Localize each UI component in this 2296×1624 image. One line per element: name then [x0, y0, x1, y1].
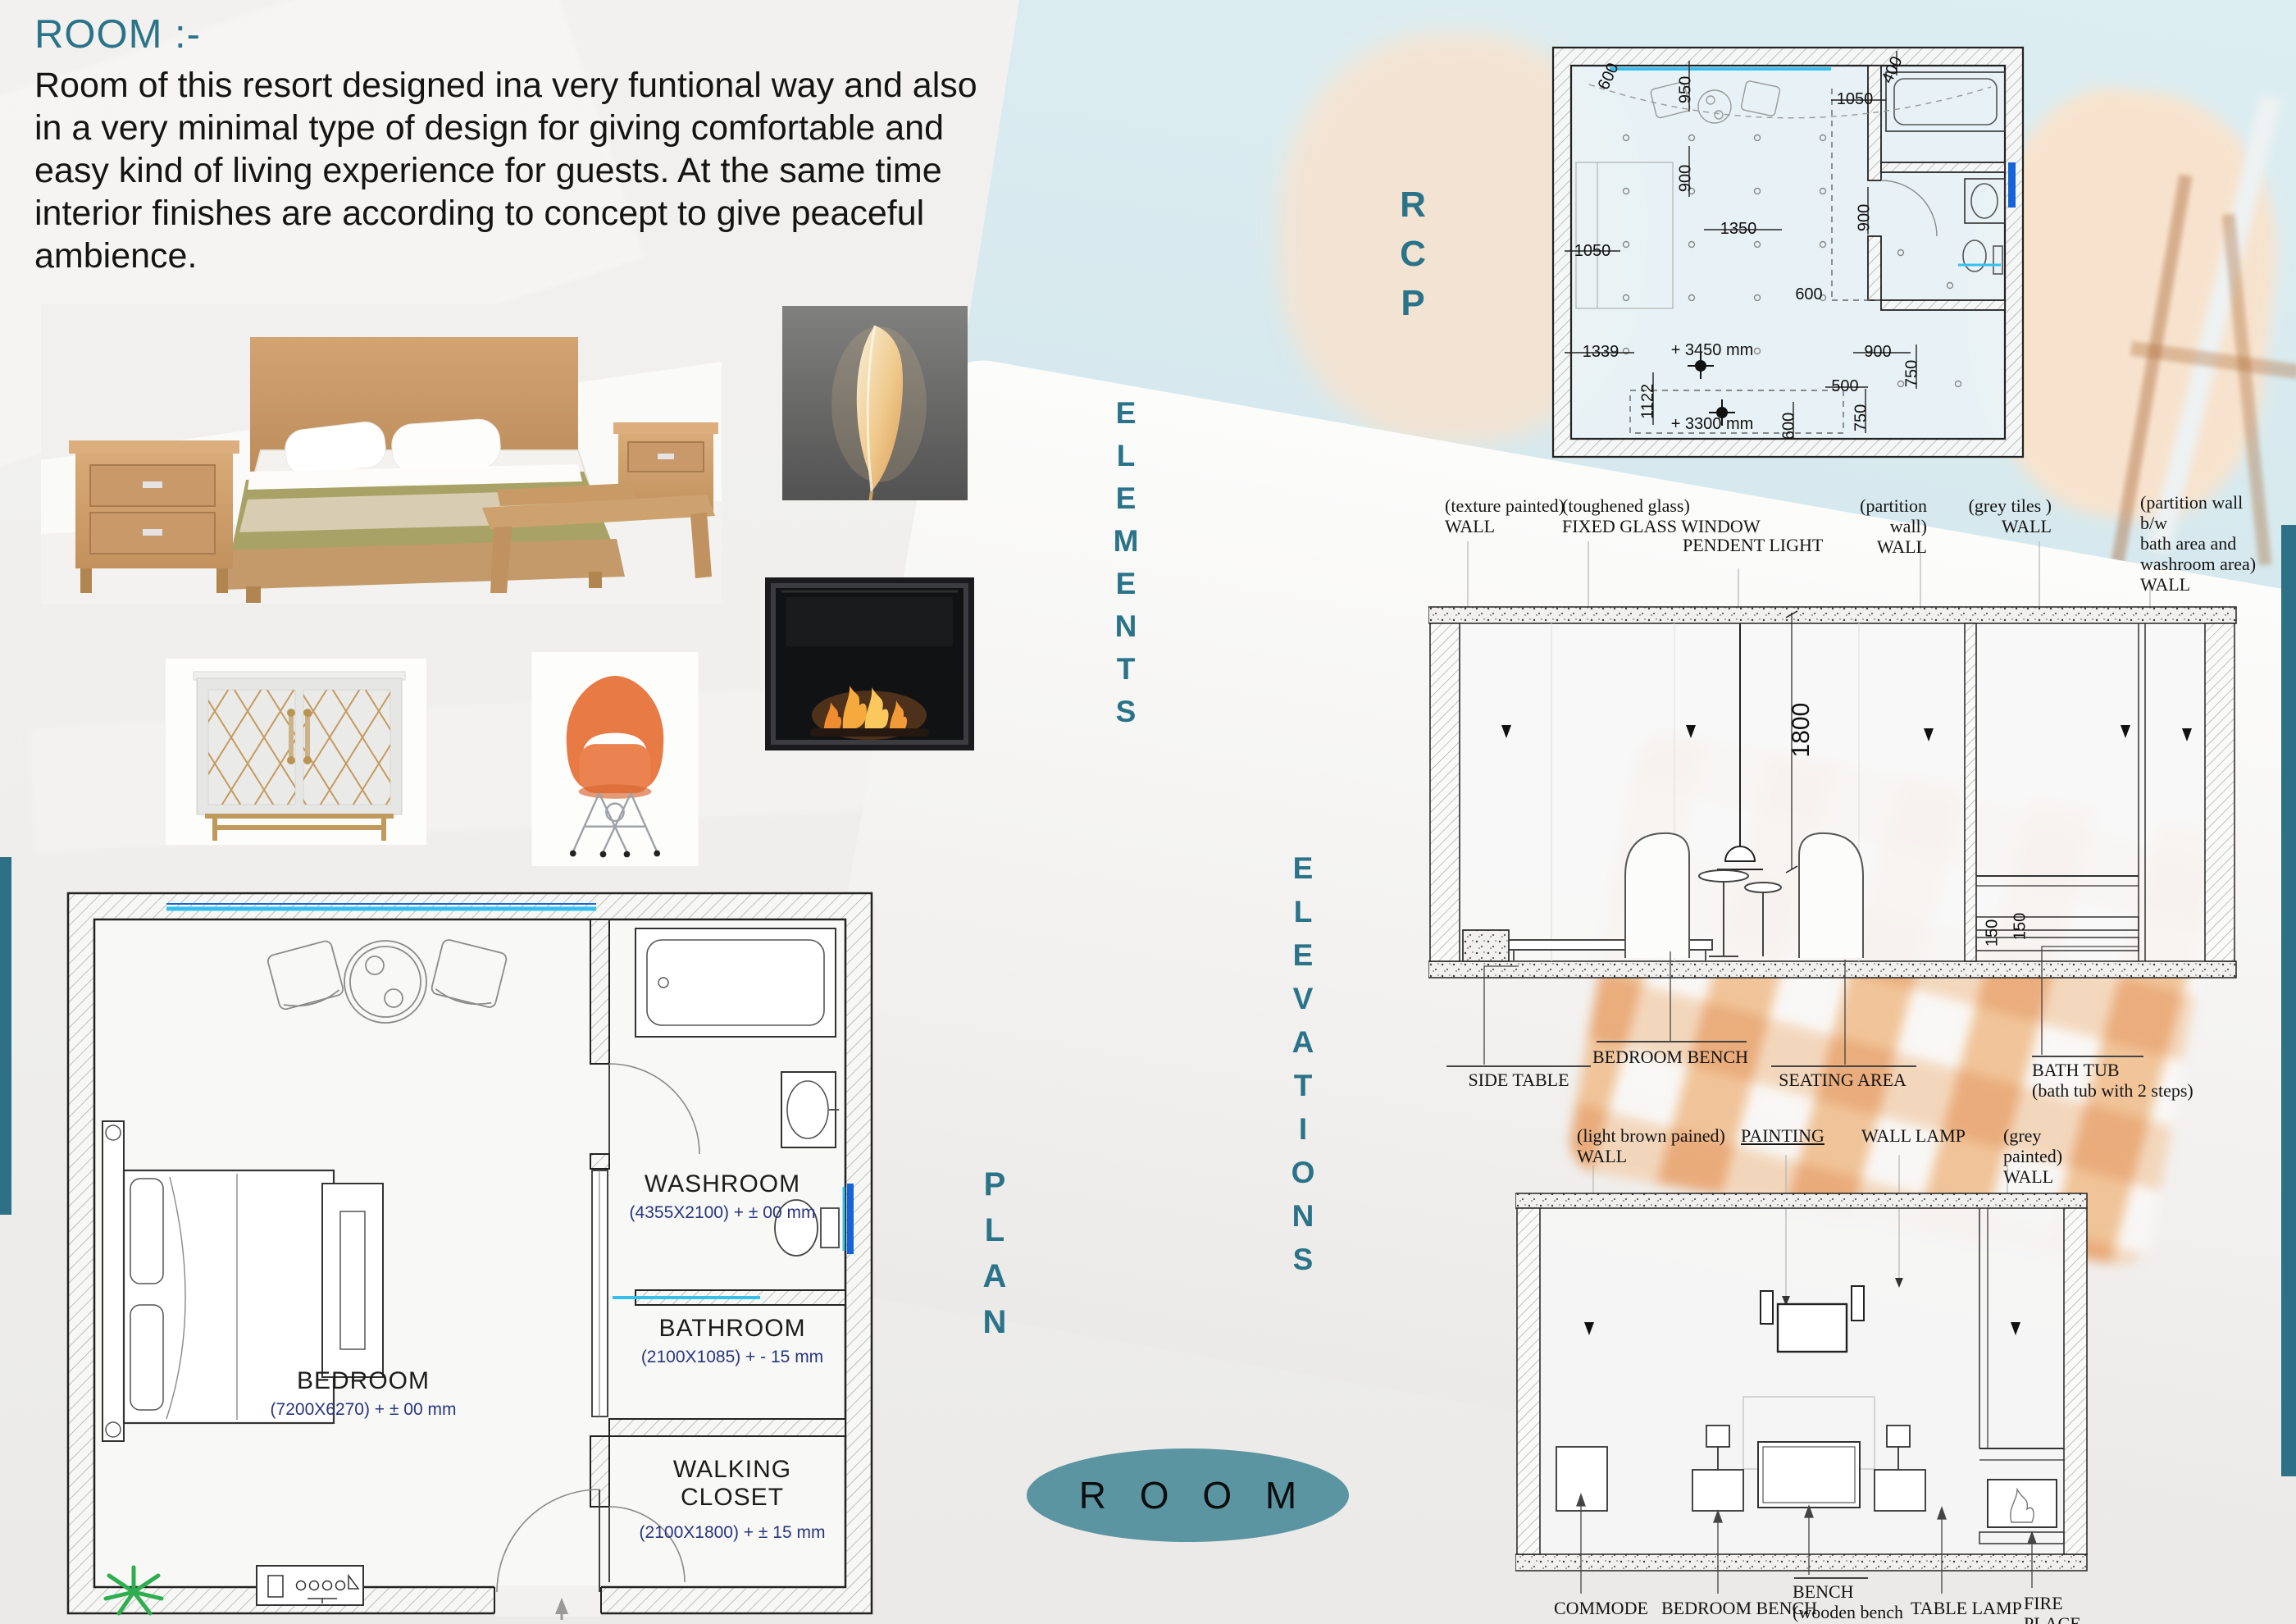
page-title: ROOM :- — [34, 11, 1100, 57]
vertical-letter: S — [1276, 1238, 1330, 1281]
bed-glyph — [223, 337, 625, 603]
vertical-letter: R — [1386, 180, 1440, 230]
room-badge: R O O M — [1027, 1448, 1349, 1542]
rcp-dim: 900 — [1856, 204, 1875, 231]
header-block: ROOM :- Room of this resort designed ina… — [34, 11, 1100, 277]
vertical-letter: E — [1276, 846, 1330, 890]
washroom-label: WASHROOM — [645, 1170, 800, 1198]
rcp-svg — [1548, 39, 2028, 462]
section-label-elements: ELEMENTS — [1099, 392, 1153, 733]
rcp-level: + 3450 mm — [1671, 341, 1754, 360]
teal-strip-left — [0, 857, 11, 1215]
elevation-front-drawing: (texture painted) WALL(toughened glass) … — [1428, 490, 2257, 1115]
elevation2-bottom-labels: COMMODEBEDROOM BENCHBENCH (wooden bench … — [1515, 1122, 2098, 1624]
vertical-letter: T — [1276, 1064, 1330, 1107]
rcp-dim: 750 — [1903, 360, 1922, 387]
vertical-letter: S — [1099, 691, 1153, 733]
bathroom-label: BATHROOM — [658, 1315, 805, 1343]
vertical-letter: L — [1276, 890, 1330, 933]
commode-label: COMMODE — [1554, 1598, 1648, 1618]
wall-lamp-photo — [782, 306, 968, 500]
vertical-letter: P — [1386, 279, 1440, 328]
elevation-bed-wall-drawing: (light brown pained) WALLPAINTINGWALL LA… — [1515, 1122, 2098, 1624]
rcp-dim: 1122 — [1639, 384, 1658, 419]
washroom-dims: (4355X2100) + ± 00 mm — [630, 1203, 816, 1223]
vertical-letter: L — [1099, 435, 1153, 477]
table-lamp-label: TABLE LAMP — [1911, 1598, 2022, 1618]
cabinet-svg — [166, 659, 426, 845]
rcp-dim: 500 — [1831, 377, 1858, 396]
rcp-dim: 900 — [1677, 165, 1696, 192]
floor-plan-drawing: WASHROOM(4355X2100) + ± 00 mmBATHROOM(21… — [61, 882, 877, 1620]
fireplace-svg — [765, 577, 974, 750]
vertical-letter: N — [1099, 605, 1153, 648]
vertical-letter: L — [968, 1207, 1022, 1253]
bath-tub-label: BATH TUB (bath tub with 2 steps) — [2032, 1060, 2193, 1101]
vertical-letter: O — [1276, 1151, 1330, 1194]
vertical-letter: A — [968, 1253, 1022, 1299]
chair-svg — [531, 652, 699, 866]
rcp-dim: 1050 — [1574, 242, 1611, 261]
section-label-plan: PLAN — [968, 1161, 1022, 1345]
presentation-board: ROOM :- Room of this resort designed ina… — [0, 0, 2296, 1624]
bench-label: BENCH (wooden bench in front of bed) — [1793, 1581, 1903, 1624]
vertical-letter: V — [1276, 977, 1330, 1020]
bedroom-label: BEDROOM — [297, 1367, 430, 1395]
intro-paragraph: Room of this resort designed ina very fu… — [34, 64, 1100, 277]
seating-area-label: SEATING AREA — [1779, 1070, 1906, 1090]
sink-glyph — [781, 1072, 839, 1147]
walking-closet-label: WALKING CLOSET — [673, 1456, 791, 1512]
fireplace-photo — [765, 577, 974, 750]
rcp-dim: 950 — [1677, 76, 1696, 103]
cabinet-glyph — [194, 672, 405, 841]
bedroom-dims: (7200X6270) + ± 00 mm — [271, 1400, 457, 1420]
bed-photo-svg — [41, 304, 722, 604]
rcp-dim: 1350 — [1720, 220, 1757, 239]
rcp-dim: 1339 — [1583, 343, 1619, 362]
section-label-rcp: RCP — [1386, 180, 1440, 328]
vertical-letter: E — [1099, 392, 1153, 435]
walking-closet-dims: (2100X1800) + ± 15 mm — [640, 1523, 826, 1543]
room-badge-label: R O O M — [1068, 1473, 1308, 1517]
vertical-letter: P — [968, 1161, 1022, 1207]
vertical-letter: E — [1099, 563, 1153, 605]
side-table-label: SIDE TABLE — [1468, 1070, 1569, 1090]
chair-photo — [531, 652, 699, 866]
section-label-elevations: ELEVATIONS — [1276, 846, 1330, 1281]
teal-strip-right — [2281, 525, 2296, 1476]
vertical-letter: I — [1276, 1107, 1330, 1151]
rcp-dim: 600 — [1795, 285, 1822, 304]
vertical-letter: T — [1099, 648, 1153, 691]
vertical-letter: N — [968, 1299, 1022, 1345]
rcp-plan-drawing: 6009504001050900135010509006001339+ 3450… — [1548, 39, 2028, 462]
vertical-letter: E — [1099, 477, 1153, 520]
bed-photo — [41, 304, 722, 604]
vertical-letter: E — [1276, 933, 1330, 977]
rcp-dim: 600 — [1780, 413, 1799, 440]
wall-lamp-svg — [782, 306, 968, 500]
rcp-dim: 1050 — [1837, 90, 1874, 109]
vertical-letter: C — [1386, 230, 1440, 279]
bedroom-bench-label: BEDROOM BENCH — [1592, 1047, 1748, 1067]
vertical-letter: A — [1276, 1020, 1330, 1064]
vertical-letter: M — [1099, 520, 1153, 563]
rcp-dim: 750 — [1852, 404, 1871, 431]
fire-place-label: FIRE PLACE — [2024, 1593, 2098, 1624]
elevation1-bottom-labels: SIDE TABLEBEDROOM BENCHSEATING AREABATH … — [1428, 490, 2257, 1115]
rcp-dim: 900 — [1864, 343, 1891, 362]
rcp-level: + 3300 mm — [1671, 415, 1754, 434]
vertical-letter: N — [1276, 1194, 1330, 1238]
bathtub-glyph — [635, 928, 836, 1037]
console-glyph — [257, 1566, 363, 1605]
bathroom-dims: (2100X1085) + - 15 mm — [641, 1348, 823, 1367]
cabinet-photo — [166, 659, 426, 845]
